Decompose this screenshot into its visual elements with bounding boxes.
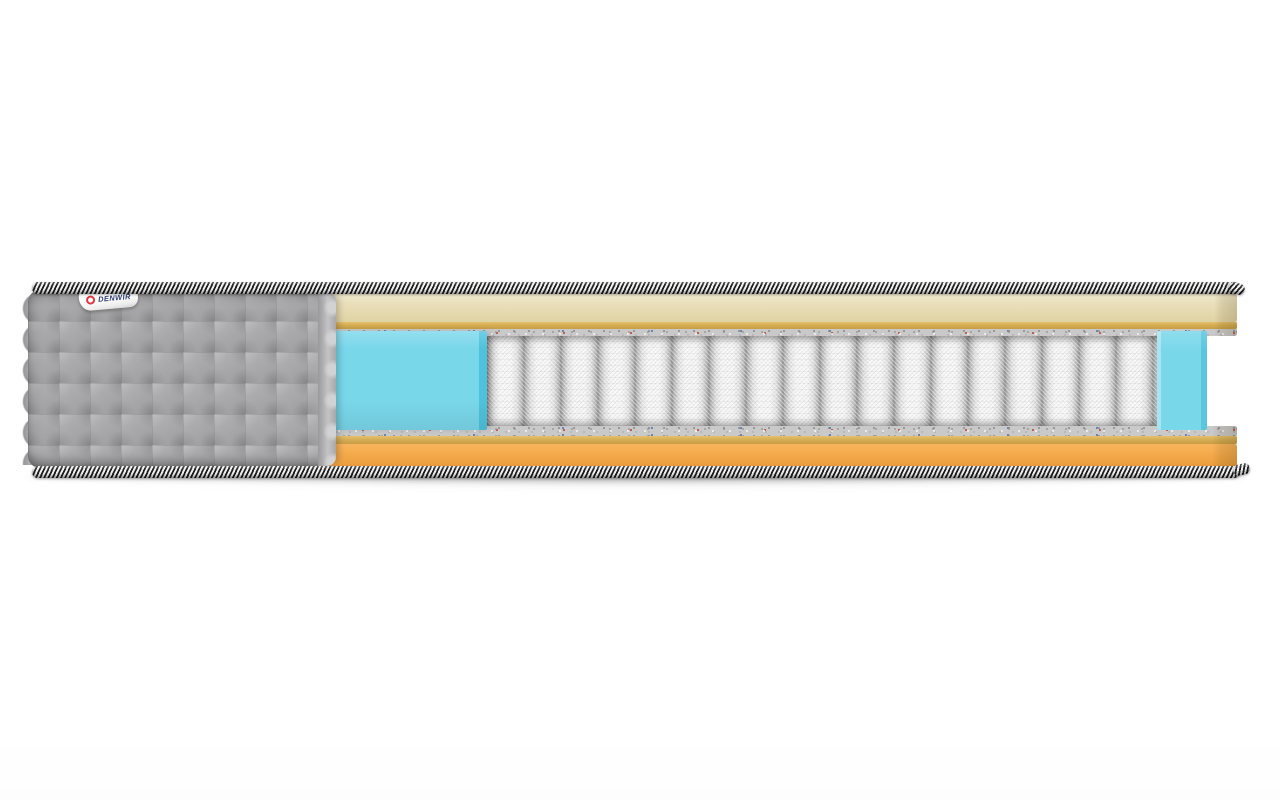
mattress-product-image: DENWIR [0, 0, 1280, 800]
top-stack-right-face [1214, 294, 1237, 336]
piping-cord-bottom [32, 466, 1240, 478]
base-foam-layer [330, 444, 1237, 467]
quilted-top-panel [330, 294, 1237, 322]
border-tape-bottom [330, 436, 1237, 444]
cover-cut-edge [318, 292, 336, 466]
foam-layer-right-end [1157, 331, 1207, 430]
brand-label-text: DENWIR [98, 293, 131, 303]
foam-layer-front [332, 331, 487, 430]
brand-logo-icon [86, 295, 96, 305]
pocket-spring-block [487, 336, 1157, 426]
border-tape-top [330, 322, 1237, 329]
quilted-cover [28, 290, 330, 468]
piping-cord-top [32, 282, 1240, 294]
bottom-stack-right-face [1212, 426, 1237, 467]
